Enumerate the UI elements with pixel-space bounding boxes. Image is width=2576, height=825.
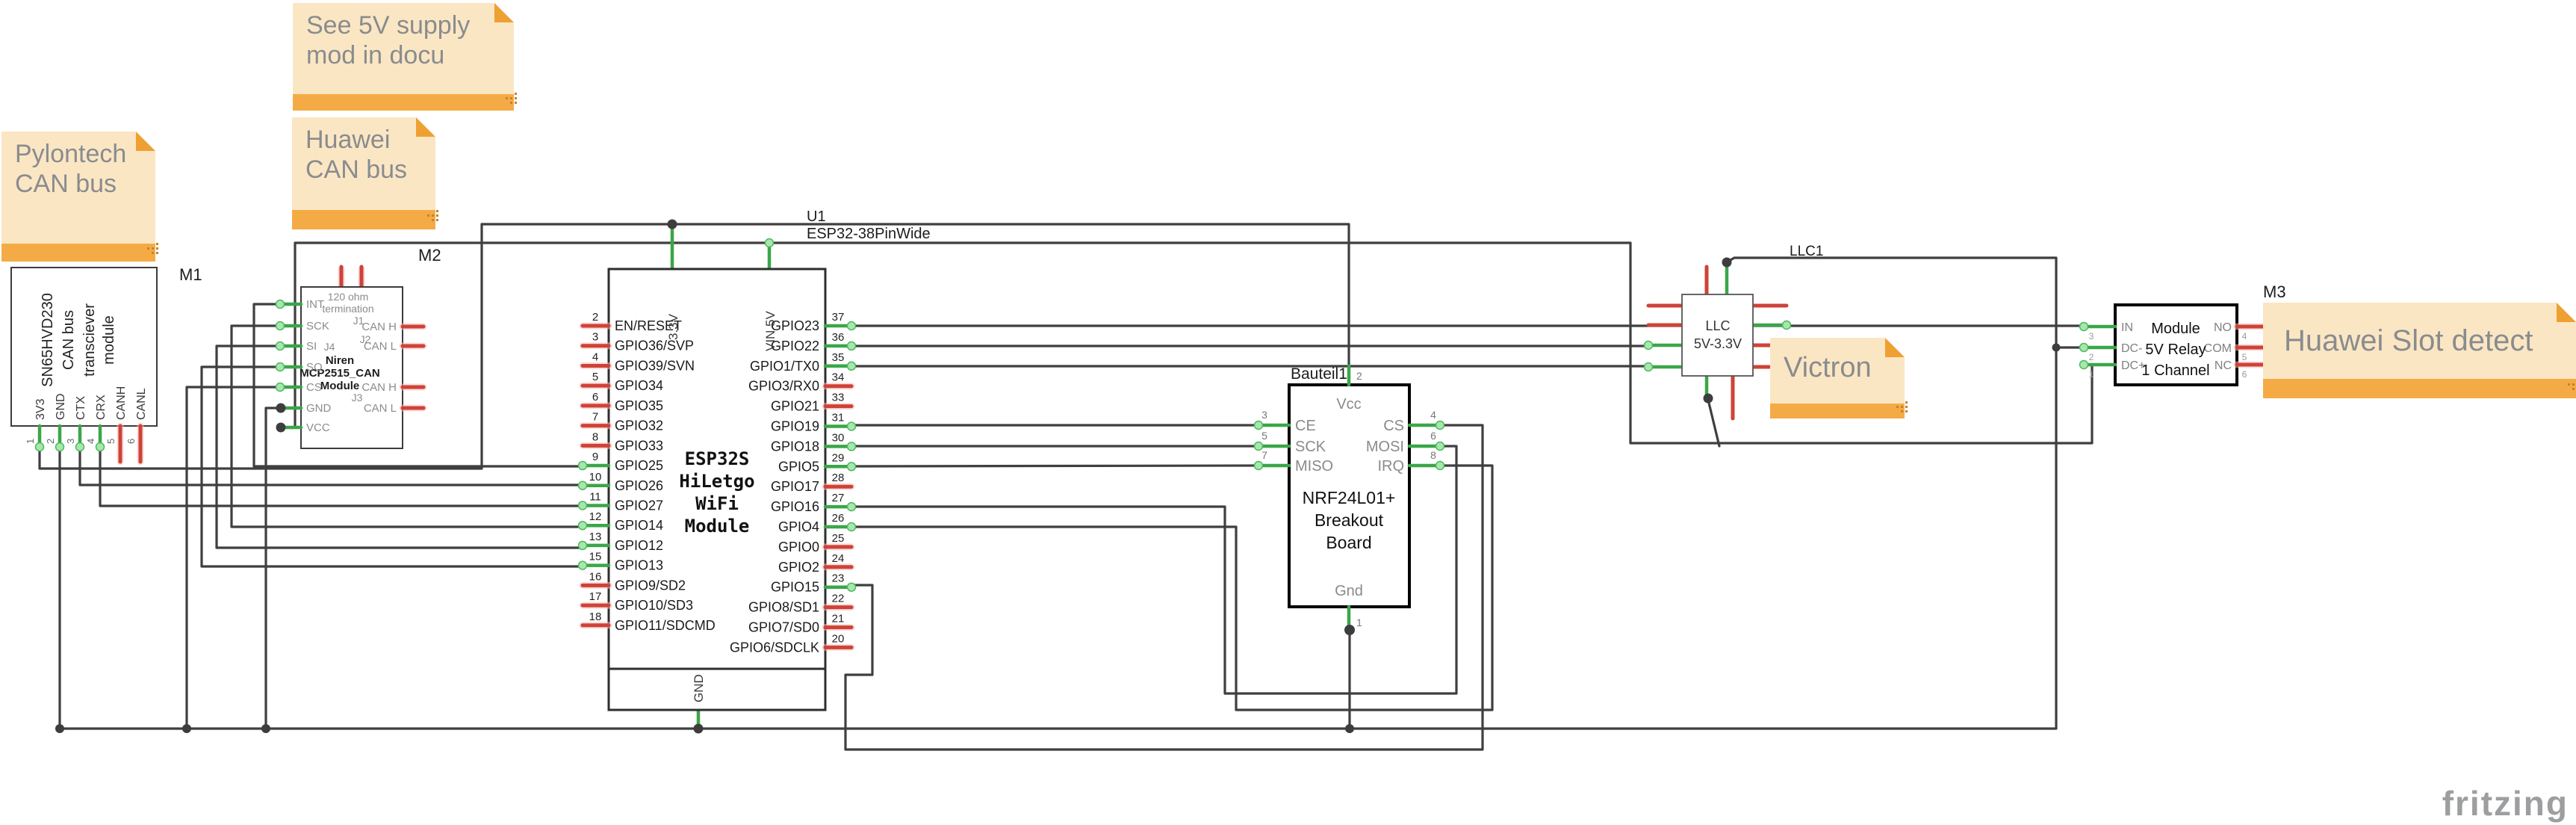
svg-text:GPIO2: GPIO2 [778,560,819,575]
note-fold-icon [2557,303,2576,322]
svg-text:INT: INT [306,298,324,311]
svg-text:4: 4 [592,350,598,363]
svg-text:35: 35 [832,351,845,364]
svg-text:CAN H: CAN H [361,321,397,333]
wire-gpio5-miso [851,466,1258,466]
label-u1-part: ESP32-38PinWide [807,226,931,242]
svg-text:LLC: LLC [1705,318,1730,333]
svg-text:GND: GND [306,402,332,415]
wire-llc-diag [1708,400,1719,446]
svg-text:NO: NO [2214,321,2232,334]
svg-text:4: 4 [85,439,96,444]
svg-text:IRQ: IRQ [1377,458,1404,475]
svg-text:5: 5 [592,371,598,383]
svg-text:transciever: transciever [81,303,98,377]
svg-text:GPIO12: GPIO12 [615,538,663,553]
fritzing-watermark: fritzing [2442,783,2569,824]
svg-text:8: 8 [1430,449,1436,461]
svg-text:CS: CS [1383,418,1404,434]
svg-text:GPIO19: GPIO19 [771,419,819,434]
svg-text:5: 5 [2242,352,2247,362]
svg-text:Module: Module [2151,321,2200,337]
svg-text:3: 3 [1261,409,1267,421]
svg-text:31: 31 [832,412,845,424]
svg-text:CAN L: CAN L [364,340,397,353]
svg-text:2: 2 [1356,370,1362,382]
label-u1: U1 [807,208,826,225]
svg-text:1: 1 [2089,369,2094,380]
svg-text:16: 16 [589,570,602,583]
svg-text:SCK: SCK [306,320,329,333]
label-m1: M1 [179,265,202,284]
svg-text:27: 27 [832,492,845,504]
note-victron[interactable]: Victron [1770,338,1905,418]
svg-text:CS: CS [306,381,322,394]
svg-text:GPIO13: GPIO13 [615,558,663,573]
svg-text:9: 9 [592,451,598,463]
note-strip[interactable] [2263,379,2576,398]
svg-text:GPIO15: GPIO15 [771,580,819,595]
svg-text:26: 26 [832,512,845,525]
svg-text:20: 20 [832,632,845,645]
svg-text:CAN H: CAN H [361,381,397,394]
note-huawei-can[interactable]: Huawei CAN bus [292,117,435,229]
svg-text:7: 7 [1261,449,1267,461]
svg-text:5: 5 [1261,430,1267,442]
svg-text:5V Relay: 5V Relay [2145,342,2206,358]
svg-text:22: 22 [832,593,845,605]
svg-text:8: 8 [592,430,598,443]
svg-text:GPIO33: GPIO33 [615,438,663,453]
svg-text:GPIO22: GPIO22 [771,339,819,353]
label-m3: M3 [2263,282,2286,301]
svg-text:23: 23 [832,572,845,585]
svg-text:18: 18 [589,611,602,623]
svg-text:6: 6 [592,391,598,404]
svg-text:NC: NC [2215,359,2232,372]
svg-text:10: 10 [589,471,602,483]
svg-text:GPIO6/SDCLK: GPIO6/SDCLK [730,640,819,655]
svg-text:30: 30 [832,431,845,444]
svg-text:CE: CE [1295,418,1316,434]
svg-text:7: 7 [592,411,598,424]
rail-glows [766,239,1791,371]
svg-text:1: 1 [1356,617,1362,628]
svg-text:CANL: CANL [135,388,148,420]
svg-text:CTX: CTX [75,396,87,420]
svg-text:2: 2 [2089,352,2094,362]
label-m2: M2 [418,246,441,265]
note-see5v-supply[interactable]: See 5V supply mod in docu [293,3,514,111]
svg-text:CAN bus: CAN bus [60,310,77,370]
svg-text:4: 4 [1430,409,1436,421]
svg-text:GPIO23: GPIO23 [771,318,819,333]
svg-text:3: 3 [65,439,76,444]
svg-text:SCK: SCK [1295,439,1326,455]
note-strip[interactable] [293,94,514,111]
svg-text:5V-3.3V: 5V-3.3V [1694,336,1742,351]
svg-text:termination: termination [322,303,373,315]
svg-text:VCC: VCC [306,421,330,434]
svg-text:GPIO1/TX0: GPIO1/TX0 [750,359,819,374]
svg-text:GPIO27: GPIO27 [615,498,663,513]
svg-text:GPIO9/SD2: GPIO9/SD2 [615,578,686,593]
svg-text:GPIO34: GPIO34 [615,378,663,393]
svg-text:GPIO17: GPIO17 [771,479,819,494]
svg-text:Vcc: Vcc [1336,396,1361,412]
label-bauteil1: Bauteil1 [1291,365,1347,383]
svg-text:11: 11 [589,490,601,503]
svg-text:6: 6 [1430,430,1436,442]
svg-text:1 Channel: 1 Channel [2141,362,2209,379]
svg-text:37: 37 [832,311,845,324]
svg-text:SN65HVD230: SN65HVD230 [40,293,56,387]
svg-text:25: 25 [832,532,845,545]
note-strip[interactable] [292,210,435,229]
svg-text:Gnd: Gnd [1335,583,1363,599]
svg-text:J4: J4 [324,341,335,353]
svg-text:24: 24 [832,552,845,565]
svg-text:3: 3 [592,331,598,344]
note-strip[interactable] [1770,404,1905,418]
svg-text:CRX: CRX [95,395,108,420]
svg-text:29: 29 [832,451,845,464]
note-pylontech[interactable]: Pylontech CAN bus [1,132,155,262]
svg-text:DC-: DC- [2121,342,2142,355]
svg-text:module: module [101,315,117,365]
schematic-canvas: M1 M2 U1 ESP32-38PinWide LLC1 Bauteil1 M… [0,0,2576,825]
svg-text:28: 28 [832,472,845,484]
svg-text:Niren: Niren [326,354,354,367]
svg-text:21: 21 [832,613,845,625]
note-strip[interactable] [1,244,155,262]
svg-text:6: 6 [2242,369,2247,380]
svg-text:3.3V: 3.3V [666,313,680,340]
svg-text:GPIO32: GPIO32 [615,418,663,433]
svg-text:Module: Module [685,516,750,537]
svg-text:NRF24L01+: NRF24L01+ [1303,488,1396,507]
svg-text:GPIO11/SDCMD: GPIO11/SDCMD [615,618,716,633]
svg-text:Module: Module [320,380,360,392]
svg-text:5: 5 [105,439,117,444]
svg-text:GPIO16: GPIO16 [771,499,819,514]
svg-text:GPIO21: GPIO21 [771,399,819,414]
relay-pins: IN3DC-2DC+1NO4COM5NC6Module5V Relay1 Cha… [2080,321,2269,380]
svg-text:Board: Board [1326,533,1371,552]
svg-text:VIN 5V: VIN 5V [763,310,778,351]
svg-text:GPIO7/SD0: GPIO7/SD0 [748,620,819,635]
label-llc1: LLC1 [1790,244,1823,259]
svg-text:2: 2 [45,439,56,444]
svg-text:GPIO8/SD1: GPIO8/SD1 [748,600,819,615]
svg-text:120 ohm: 120 ohm [328,291,368,303]
svg-text:MOSI: MOSI [1366,439,1404,455]
pin-stubs [341,224,1787,729]
svg-text:COM: COM [2204,342,2232,355]
svg-text:6: 6 [125,439,137,444]
svg-text:GPIO18: GPIO18 [771,439,819,454]
note-huawei-slot[interactable]: Huawei Slot detect [2263,303,2576,398]
svg-text:GPIO0: GPIO0 [778,540,819,554]
module-llc[interactable] [1682,294,1753,376]
svg-text:4: 4 [2242,331,2247,342]
svg-text:3V3: 3V3 [34,398,47,420]
svg-text:GPIO39/SVN: GPIO39/SVN [615,358,695,373]
svg-text:GPIO14: GPIO14 [615,518,663,533]
wire-m2-gnd [266,408,281,729]
svg-text:CAN L: CAN L [364,402,397,415]
svg-text:SI: SI [306,340,317,353]
svg-text:2: 2 [592,311,598,324]
svg-text:GPIO4: GPIO4 [778,519,819,534]
svg-text:GPIO3/RX0: GPIO3/RX0 [748,379,819,394]
svg-text:MISO: MISO [1295,458,1333,475]
svg-text:GPIO25: GPIO25 [615,458,663,473]
svg-text:17: 17 [589,590,602,603]
svg-text:12: 12 [589,510,602,523]
svg-text:GND: GND [692,674,706,702]
svg-text:GPIO35: GPIO35 [615,398,663,413]
svg-text:1: 1 [25,439,36,444]
svg-text:ESP32S: ESP32S [685,448,750,469]
svg-text:33: 33 [832,392,845,404]
svg-text:WiFi: WiFi [695,493,739,514]
wire-m1-crx [100,448,583,506]
svg-text:GND: GND [55,393,67,420]
svg-text:36: 36 [832,331,845,344]
svg-text:13: 13 [589,531,602,543]
svg-text:SO: SO [306,361,323,374]
svg-text:CANH: CANH [115,386,128,420]
svg-text:15: 15 [589,551,602,563]
svg-text:GPIO26: GPIO26 [615,478,663,493]
svg-text:GPIO5: GPIO5 [778,459,819,474]
svg-text:GPIO10/SD3: GPIO10/SD3 [615,598,693,613]
svg-text:Breakout: Breakout [1315,510,1384,530]
svg-text:HiLetgo: HiLetgo [679,471,754,492]
svg-text:34: 34 [832,371,845,384]
nrf-pins: 3CE5SCK7MISO4CS6MOSI8IRQ2Vcc1GndNRF24L01… [1255,366,1444,630]
svg-text:IN: IN [2121,321,2133,334]
svg-text:3: 3 [2089,331,2094,342]
svg-text:GPIO36/SVP: GPIO36/SVP [615,339,694,353]
